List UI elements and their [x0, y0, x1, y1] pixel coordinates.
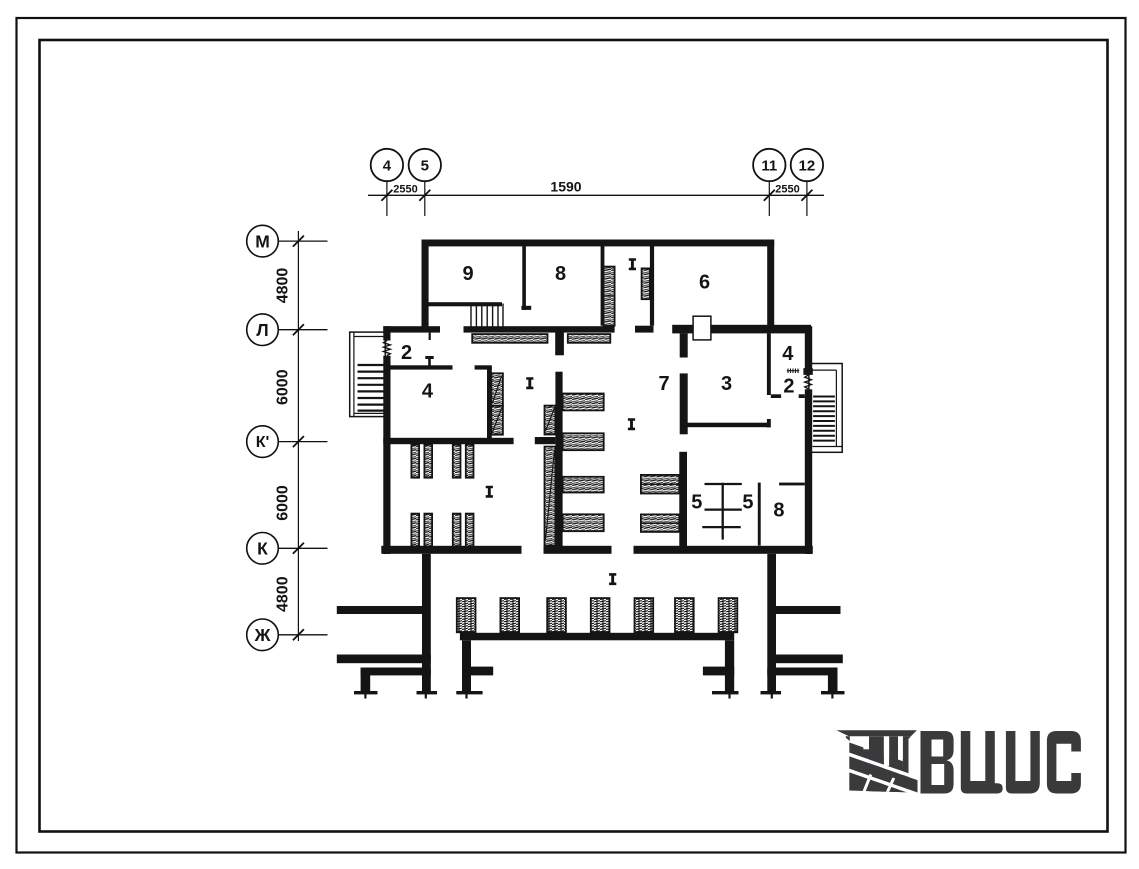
- svg-text:4800: 4800: [275, 268, 292, 304]
- svg-text:4: 4: [422, 381, 434, 403]
- svg-text:2: 2: [783, 376, 794, 398]
- svg-text:2550: 2550: [393, 184, 417, 196]
- svg-text:2550: 2550: [775, 184, 799, 196]
- svg-text:6000: 6000: [275, 369, 292, 405]
- svg-text:6000: 6000: [275, 485, 292, 521]
- svg-text:11: 11: [761, 158, 777, 175]
- svg-text:Ж: Ж: [254, 625, 271, 645]
- svg-text:5: 5: [691, 491, 702, 513]
- svg-text:3: 3: [721, 373, 732, 395]
- svg-text:К: К: [257, 539, 268, 559]
- svg-text:М: М: [255, 231, 270, 251]
- svg-text:8: 8: [555, 263, 566, 285]
- svg-text:Л: Л: [256, 320, 268, 340]
- svg-text:5: 5: [421, 158, 429, 175]
- svg-text:2: 2: [401, 342, 412, 364]
- svg-text:9: 9: [462, 263, 473, 285]
- svg-text:12: 12: [799, 158, 816, 175]
- svg-text:4: 4: [383, 158, 392, 175]
- svg-text:К': К': [256, 434, 270, 451]
- svg-text:6: 6: [699, 272, 710, 294]
- svg-text:4800: 4800: [275, 576, 292, 612]
- svg-text:7: 7: [658, 373, 669, 395]
- svg-text:8: 8: [773, 499, 784, 521]
- svg-text:4: 4: [782, 343, 794, 365]
- svg-text:5: 5: [742, 491, 753, 513]
- svg-text:1590: 1590: [550, 179, 581, 195]
